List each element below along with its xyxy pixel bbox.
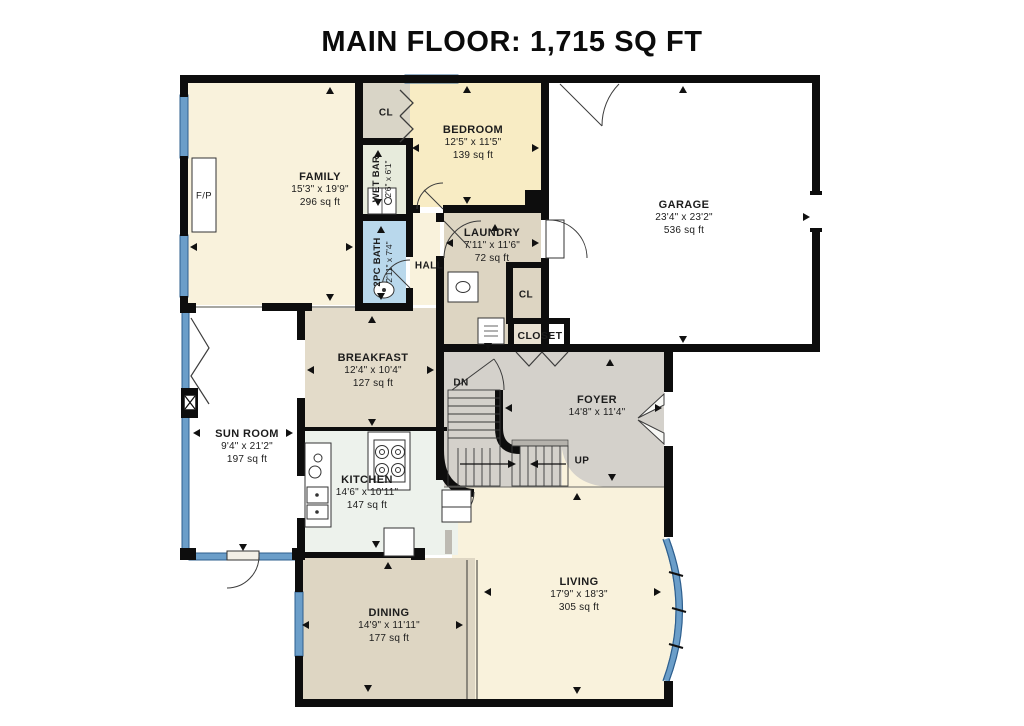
room-label-bedroom: BEDROOM 12'5" x 11'5" 139 sq ft	[443, 124, 503, 162]
room-label-kitchen: KITCHEN 14'6" x 10'11" 147 sq ft	[336, 474, 398, 512]
room-label-closet-foyer: CLOSET	[518, 330, 563, 342]
hall-closet-box	[442, 490, 471, 507]
kitchen-cabinet	[384, 528, 414, 556]
room-label-sun-room: SUN ROOM 9'4" x 21'2" 197 sq ft	[215, 428, 279, 466]
stairs-up-label: UP	[575, 456, 590, 467]
room-label-garage: GARAGE 23'4" x 23'2" 536 sq ft	[655, 199, 712, 237]
room-label-hall: HALL	[415, 261, 443, 272]
room-label-foyer: FOYER 14'8" x 11'4"	[569, 394, 626, 420]
room-label-2pc-bath: 2PC BATH 2'11" x 7'4"	[372, 237, 395, 286]
floor-plan-page: MAIN FLOOR: 1,715 SQ FT	[0, 0, 1024, 726]
room-label-laundry: LAUNDRY 7'11" x 11'6" 72 sq ft	[464, 227, 520, 265]
room-label-breakfast: BREAKFAST 12'4" x 10'4" 127 sq ft	[338, 352, 409, 390]
room-label-closet-top: CL	[379, 108, 393, 119]
laundry-sink	[448, 272, 478, 302]
room-label-dining: DINING 14'9" x 11'11" 177 sq ft	[358, 607, 420, 645]
floor-plan-drawing	[0, 0, 1024, 726]
room-label-living: LIVING 17'9" x 18'3" 305 sq ft	[550, 576, 607, 614]
room-label-closet-laundry: CL	[519, 290, 533, 301]
stairs-down-label: DN	[453, 378, 468, 389]
room-label-family: FAMILY 15'3" x 19'9" 296 sq ft	[291, 171, 348, 209]
fireplace-label: F/P	[196, 191, 212, 202]
room-label-wet-bar: WET BAR 2'6" x 6'1"	[371, 156, 394, 202]
